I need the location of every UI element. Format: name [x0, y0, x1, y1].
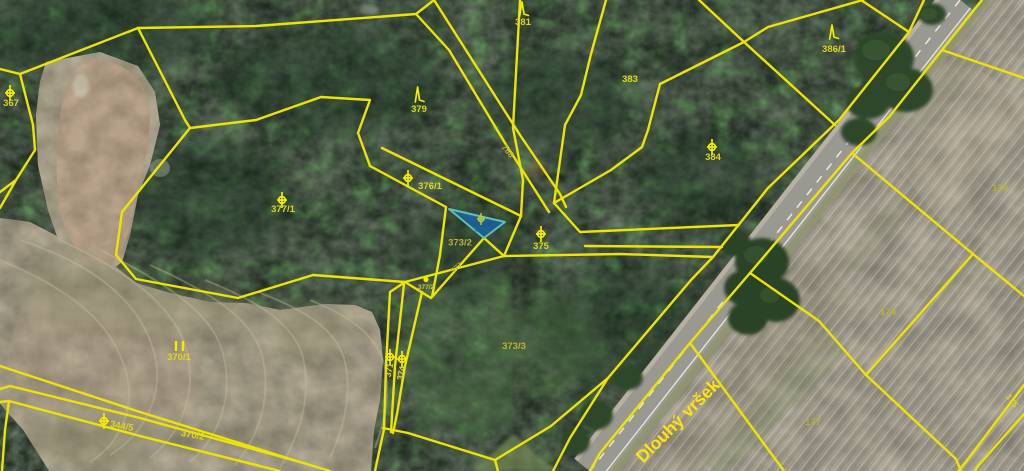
svg-text:377/2: 377/2	[418, 284, 435, 291]
svg-text:370/2: 370/2	[474, 228, 490, 234]
svg-text:170: 170	[992, 183, 1008, 194]
svg-text:379: 379	[411, 104, 427, 115]
svg-text:375: 375	[533, 241, 550, 252]
svg-text:383: 383	[622, 74, 638, 85]
svg-text:373/2: 373/2	[448, 238, 472, 249]
svg-text:386/1: 386/1	[822, 44, 846, 55]
svg-text:377/1: 377/1	[271, 204, 295, 215]
svg-text:370/1: 370/1	[167, 352, 191, 363]
svg-text:174: 174	[880, 307, 897, 318]
svg-text:376/1: 376/1	[418, 181, 442, 192]
svg-text:384: 384	[705, 152, 722, 163]
svg-text:373/3: 373/3	[502, 341, 526, 352]
svg-text:177: 177	[805, 417, 821, 428]
svg-text:381: 381	[515, 17, 532, 28]
svg-text:367: 367	[3, 98, 19, 109]
